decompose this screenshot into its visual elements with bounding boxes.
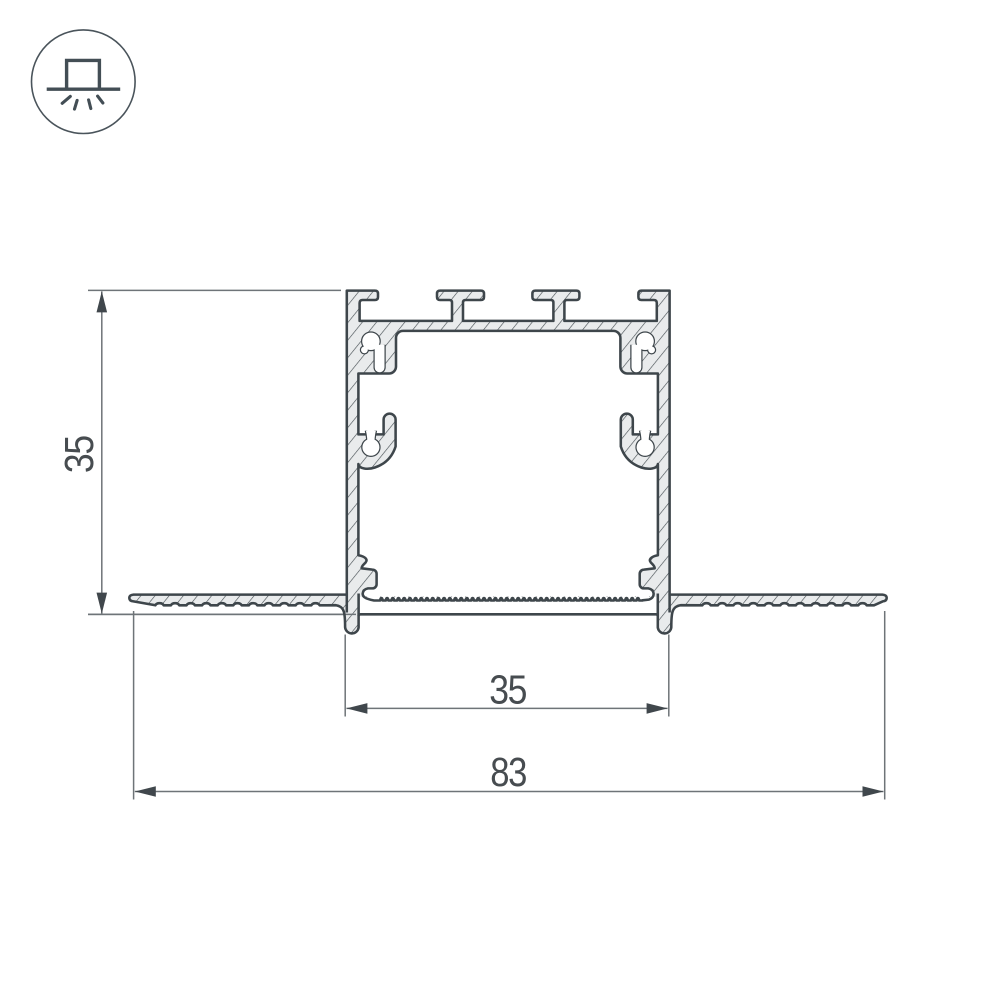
svg-text:35: 35 xyxy=(56,435,102,473)
svg-text:83: 83 xyxy=(490,749,526,795)
svg-text:35: 35 xyxy=(489,667,527,713)
